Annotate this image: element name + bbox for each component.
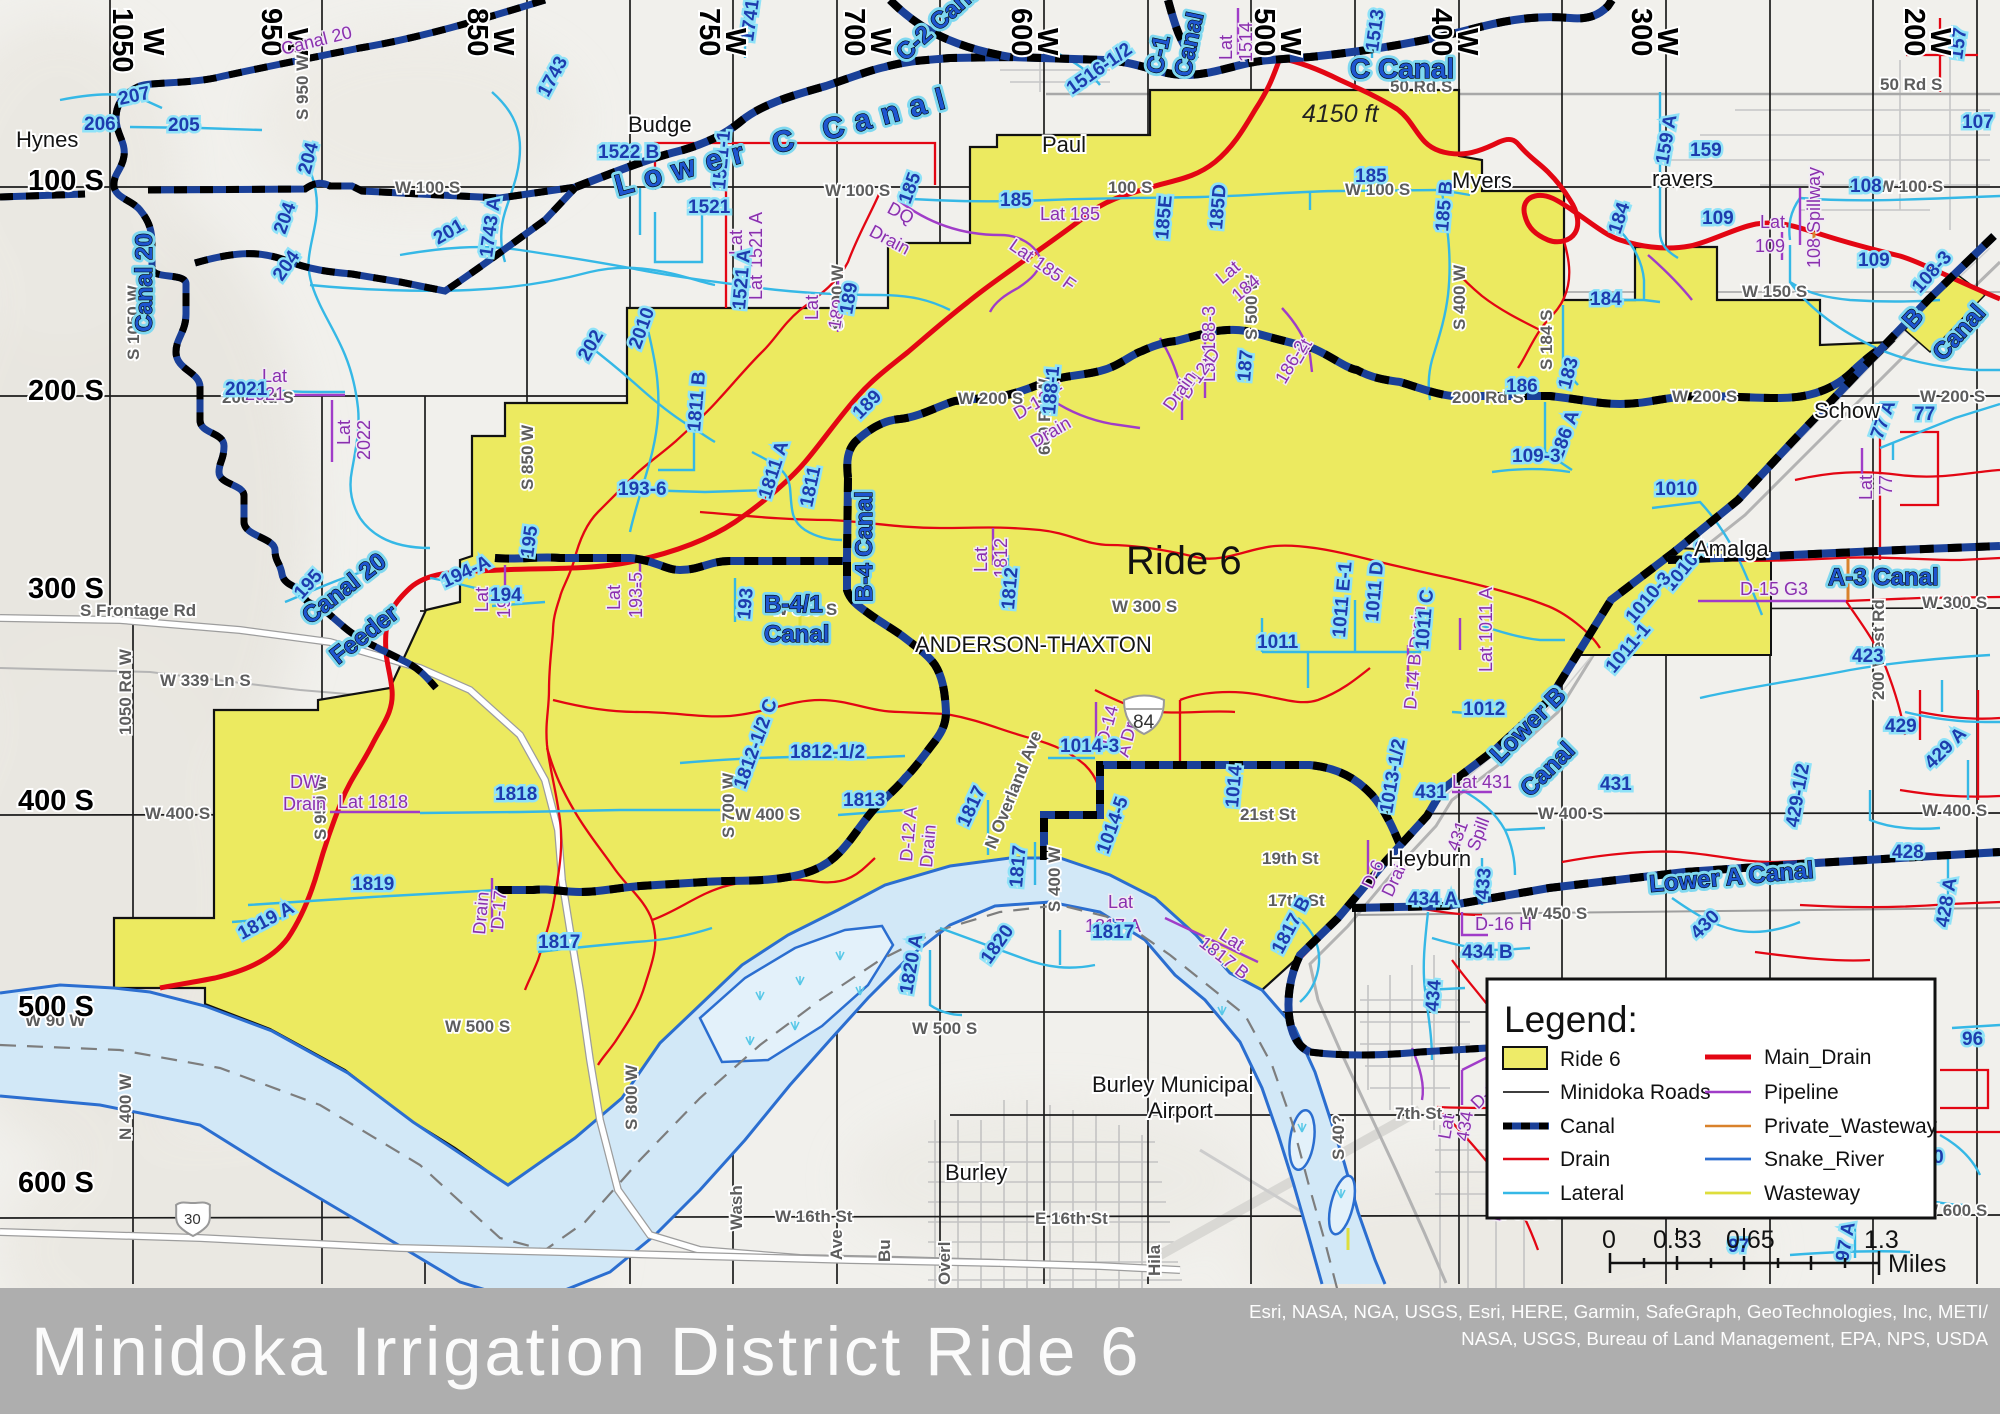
svg-text:W: W <box>1274 28 1306 56</box>
svg-text:Drain: Drain <box>1560 1148 1610 1171</box>
svg-text:21st St: 21st St <box>1240 805 1296 824</box>
svg-text:96: 96 <box>1962 1029 1983 1050</box>
svg-text:Lat 185: Lat 185 <box>1040 204 1100 224</box>
svg-text:434: 434 <box>1422 979 1446 1013</box>
svg-text:100 S: 100 S <box>1108 178 1152 197</box>
svg-text:W: W <box>487 28 519 56</box>
svg-text:500 S: 500 S <box>18 991 94 1023</box>
svg-text:193: 193 <box>734 587 758 620</box>
svg-text:0.65: 0.65 <box>1726 1226 1775 1254</box>
svg-text:434 B: 434 B <box>1462 942 1513 963</box>
svg-text:Lateral: Lateral <box>1560 1182 1624 1205</box>
svg-text:1010: 1010 <box>1655 479 1697 500</box>
svg-text:W 100 S: W 100 S <box>395 178 460 197</box>
svg-text:185: 185 <box>1000 190 1032 211</box>
svg-text:B-4 Canal: B-4 Canal <box>851 491 878 602</box>
svg-text:Hynes: Hynes <box>16 127 78 152</box>
svg-text:195: 195 <box>517 524 542 559</box>
svg-text:1819: 1819 <box>352 874 394 895</box>
svg-text:Wash: Wash <box>727 1185 746 1230</box>
svg-text:Schow: Schow <box>1814 398 1880 423</box>
svg-text:433: 433 <box>1472 867 1496 900</box>
svg-text:Drain: Drain <box>916 824 940 869</box>
svg-text:77: 77 <box>1914 404 1935 425</box>
svg-text:1050 Rd W: 1050 Rd W <box>116 648 135 735</box>
svg-text:W: W <box>719 28 751 56</box>
svg-text:300 S: 300 S <box>28 573 104 605</box>
svg-text:W: W <box>137 28 169 56</box>
svg-text:S 400 W: S 400 W <box>1450 264 1469 330</box>
svg-text:W: W <box>1031 28 1063 56</box>
svg-text:77: 77 <box>1876 475 1896 495</box>
svg-text:107: 107 <box>1962 112 1994 133</box>
svg-text:429: 429 <box>1885 716 1917 737</box>
svg-text:Snake_River: Snake_River <box>1764 1148 1884 1171</box>
svg-text:4150 ft: 4150 ft <box>1302 100 1380 128</box>
svg-text:50 Rd S: 50 Rd S <box>1880 75 1942 94</box>
svg-text:109-3: 109-3 <box>1512 446 1561 467</box>
svg-text:Airport: Airport <box>1148 1098 1213 1123</box>
svg-text:431: 431 <box>1600 774 1632 795</box>
svg-text:109: 109 <box>1702 208 1734 229</box>
svg-text:Legend:: Legend: <box>1504 999 1638 1040</box>
svg-text:W 500 S: W 500 S <box>912 1019 977 1038</box>
svg-text:185E: 185E <box>1152 194 1177 240</box>
svg-text:109: 109 <box>1858 250 1890 271</box>
svg-text:188-1: 188-1 <box>1039 365 1064 416</box>
svg-text:ANDERSON-THAXTON: ANDERSON-THAXTON <box>915 632 1152 657</box>
svg-text:W: W <box>1924 28 1956 56</box>
svg-text:Canal: Canal <box>764 621 829 648</box>
svg-text:1817: 1817 <box>1092 922 1134 943</box>
svg-text:W 400 S: W 400 S <box>1538 804 1603 823</box>
svg-text:Esri, NASA, NGA, USGS, Esri, H: Esri, NASA, NGA, USGS, Esri, HERE, Garmi… <box>1249 1301 1989 1322</box>
svg-text:Canal 20: Canal 20 <box>131 233 158 332</box>
svg-text:W: W <box>1651 28 1683 56</box>
svg-text:200 S: 200 S <box>28 375 104 407</box>
svg-text:434 A: 434 A <box>1408 889 1458 910</box>
svg-text:Drain: Drain <box>283 794 326 814</box>
svg-text:423: 423 <box>1852 646 1884 667</box>
svg-text:A-3 Canal: A-3 Canal <box>1828 564 1939 591</box>
svg-text:S 184 S: S 184 S <box>1537 310 1556 371</box>
svg-text:S 850 W: S 850 W <box>518 424 537 490</box>
svg-text:187: 187 <box>1234 349 1258 382</box>
svg-text:Lat: Lat <box>604 585 624 610</box>
svg-text:206: 206 <box>84 114 116 135</box>
svg-text:108: 108 <box>1850 176 1882 197</box>
svg-text:19th St: 19th St <box>1262 849 1319 868</box>
svg-text:Lat: Lat <box>971 547 991 572</box>
svg-text:1817: 1817 <box>1006 844 1031 888</box>
svg-text:193-6: 193-6 <box>618 479 667 500</box>
svg-text:Overl: Overl <box>935 1242 954 1285</box>
svg-text:S 40?: S 40? <box>1329 1115 1348 1160</box>
svg-text:Pipeline: Pipeline <box>1764 1081 1839 1104</box>
svg-text:205: 205 <box>168 115 200 136</box>
svg-text:1521: 1521 <box>688 197 731 218</box>
svg-text:Burley: Burley <box>945 1160 1007 1185</box>
svg-text:Myers: Myers <box>1452 168 1512 193</box>
svg-text:D-15 G3: D-15 G3 <box>1740 579 1808 599</box>
svg-text:Lat 431: Lat 431 <box>1452 772 1512 792</box>
svg-text:W 150 S: W 150 S <box>1742 282 1807 301</box>
svg-text:428: 428 <box>1892 842 1924 863</box>
svg-text:D-17: D-17 <box>487 890 510 931</box>
svg-text:DW: DW <box>290 772 320 792</box>
svg-text:185D: 185D <box>1206 183 1231 230</box>
svg-text:Main_Drain: Main_Drain <box>1764 1046 1871 1069</box>
svg-text:W 100 S: W 100 S <box>1878 177 1943 196</box>
svg-text:Lat: Lat <box>1760 212 1785 232</box>
svg-text:Ride 6: Ride 6 <box>1126 539 1242 583</box>
svg-text:Lat: Lat <box>1216 35 1236 60</box>
svg-text:Lat: Lat <box>334 420 354 445</box>
svg-text:Lat: Lat <box>1108 892 1133 912</box>
svg-text:Minidoka Roads: Minidoka Roads <box>1560 1081 1711 1104</box>
svg-text:Lat 1011 A: Lat 1011 A <box>1476 587 1496 672</box>
svg-text:1012: 1012 <box>1463 699 1505 720</box>
svg-text:NASA, USGS, Bureau of Land Man: NASA, USGS, Bureau of Land Management, E… <box>1461 1328 1988 1349</box>
svg-text:1813: 1813 <box>843 790 885 811</box>
svg-text:194: 194 <box>490 585 522 606</box>
svg-text:Canal: Canal <box>1560 1115 1615 1138</box>
svg-text:159: 159 <box>1690 140 1722 161</box>
svg-text:Private_Wasteway: Private_Wasteway <box>1764 1115 1938 1138</box>
svg-text:Lat: Lat <box>1856 475 1876 500</box>
svg-text:1050: 1050 <box>106 8 138 73</box>
svg-text:D-16 H: D-16 H <box>1475 914 1532 934</box>
svg-text:7th St: 7th St <box>1395 1104 1443 1123</box>
svg-text:1812-1/2: 1812-1/2 <box>790 742 865 763</box>
svg-text:Lat 1818: Lat 1818 <box>338 792 408 812</box>
svg-text:Miles: Miles <box>1888 1250 1946 1278</box>
svg-text:1818: 1818 <box>495 784 537 805</box>
svg-text:B-4/1: B-4/1 <box>764 591 823 618</box>
svg-text:Heyburn: Heyburn <box>1388 846 1471 871</box>
svg-text:C Canal: C Canal <box>1350 53 1454 84</box>
svg-text:W 500 S: W 500 S <box>445 1017 510 1036</box>
svg-text:Minidoka Irrigation District R: Minidoka Irrigation District Ride 6 <box>31 1313 1141 1390</box>
svg-text:W 400 S: W 400 S <box>145 804 210 823</box>
svg-text:1014: 1014 <box>1222 764 1247 808</box>
svg-text:W 300 S: W 300 S <box>1112 597 1177 616</box>
svg-text:Lat: Lat <box>472 587 492 612</box>
svg-text:W 300 S: W 300 S <box>1922 593 1987 612</box>
svg-text:30: 30 <box>184 1211 201 1228</box>
svg-text:Budge: Budge <box>628 112 692 137</box>
svg-text:1014-3: 1014-3 <box>1060 736 1119 757</box>
svg-text:Wasteway: Wasteway <box>1764 1182 1861 1205</box>
svg-text:ravers: ravers <box>1652 166 1713 191</box>
svg-text:S 950 W: S 950 W <box>293 54 312 120</box>
svg-text:100 S: 100 S <box>28 165 104 197</box>
svg-text:185: 185 <box>1355 166 1387 187</box>
svg-text:W 16th St: W 16th St <box>775 1207 853 1226</box>
svg-text:Hila: Hila <box>1145 1244 1164 1276</box>
svg-text:186: 186 <box>1506 376 1538 397</box>
svg-text:S 400 W: S 400 W <box>1045 846 1064 912</box>
svg-text:2022: 2022 <box>354 420 374 460</box>
svg-text:W: W <box>864 28 896 56</box>
svg-text:W: W <box>1451 28 1483 56</box>
svg-text:W 200 S: W 200 S <box>1672 387 1737 406</box>
svg-text:431: 431 <box>1415 782 1447 803</box>
svg-text:2021: 2021 <box>225 379 268 400</box>
svg-text:Ave: Ave <box>827 1229 846 1260</box>
svg-text:109: 109 <box>1755 236 1785 256</box>
svg-text:184: 184 <box>1590 289 1622 310</box>
svg-text:W 100 S: W 100 S <box>825 181 890 200</box>
svg-text:108 Spillway: 108 Spillway <box>1804 167 1824 268</box>
svg-text:84: 84 <box>1133 712 1155 733</box>
svg-text:Burley Municipal: Burley Municipal <box>1092 1072 1253 1097</box>
svg-text:193-5: 193-5 <box>626 572 646 618</box>
svg-text:E 16th St: E 16th St <box>1035 1209 1108 1228</box>
svg-text:Paul: Paul <box>1042 132 1086 157</box>
svg-text:N 400 W: N 400 W <box>116 1073 135 1140</box>
svg-text:1011: 1011 <box>1257 632 1299 653</box>
svg-text:Lat: Lat <box>802 295 822 320</box>
svg-text:Amalga: Amalga <box>1694 536 1769 561</box>
svg-text:1817: 1817 <box>538 932 580 953</box>
svg-text:0: 0 <box>1602 1226 1616 1254</box>
svg-text:400 S: 400 S <box>18 785 94 817</box>
svg-text:1812: 1812 <box>998 566 1023 610</box>
svg-text:W 339 Ln S: W 339 Ln S <box>160 671 251 690</box>
svg-text:Bu: Bu <box>875 1239 894 1262</box>
svg-text:W 400 S: W 400 S <box>1922 801 1987 820</box>
svg-text:Ride 6: Ride 6 <box>1560 1048 1621 1071</box>
svg-text:W 400 S: W 400 S <box>735 805 800 824</box>
svg-text:600 S: 600 S <box>18 1167 94 1199</box>
